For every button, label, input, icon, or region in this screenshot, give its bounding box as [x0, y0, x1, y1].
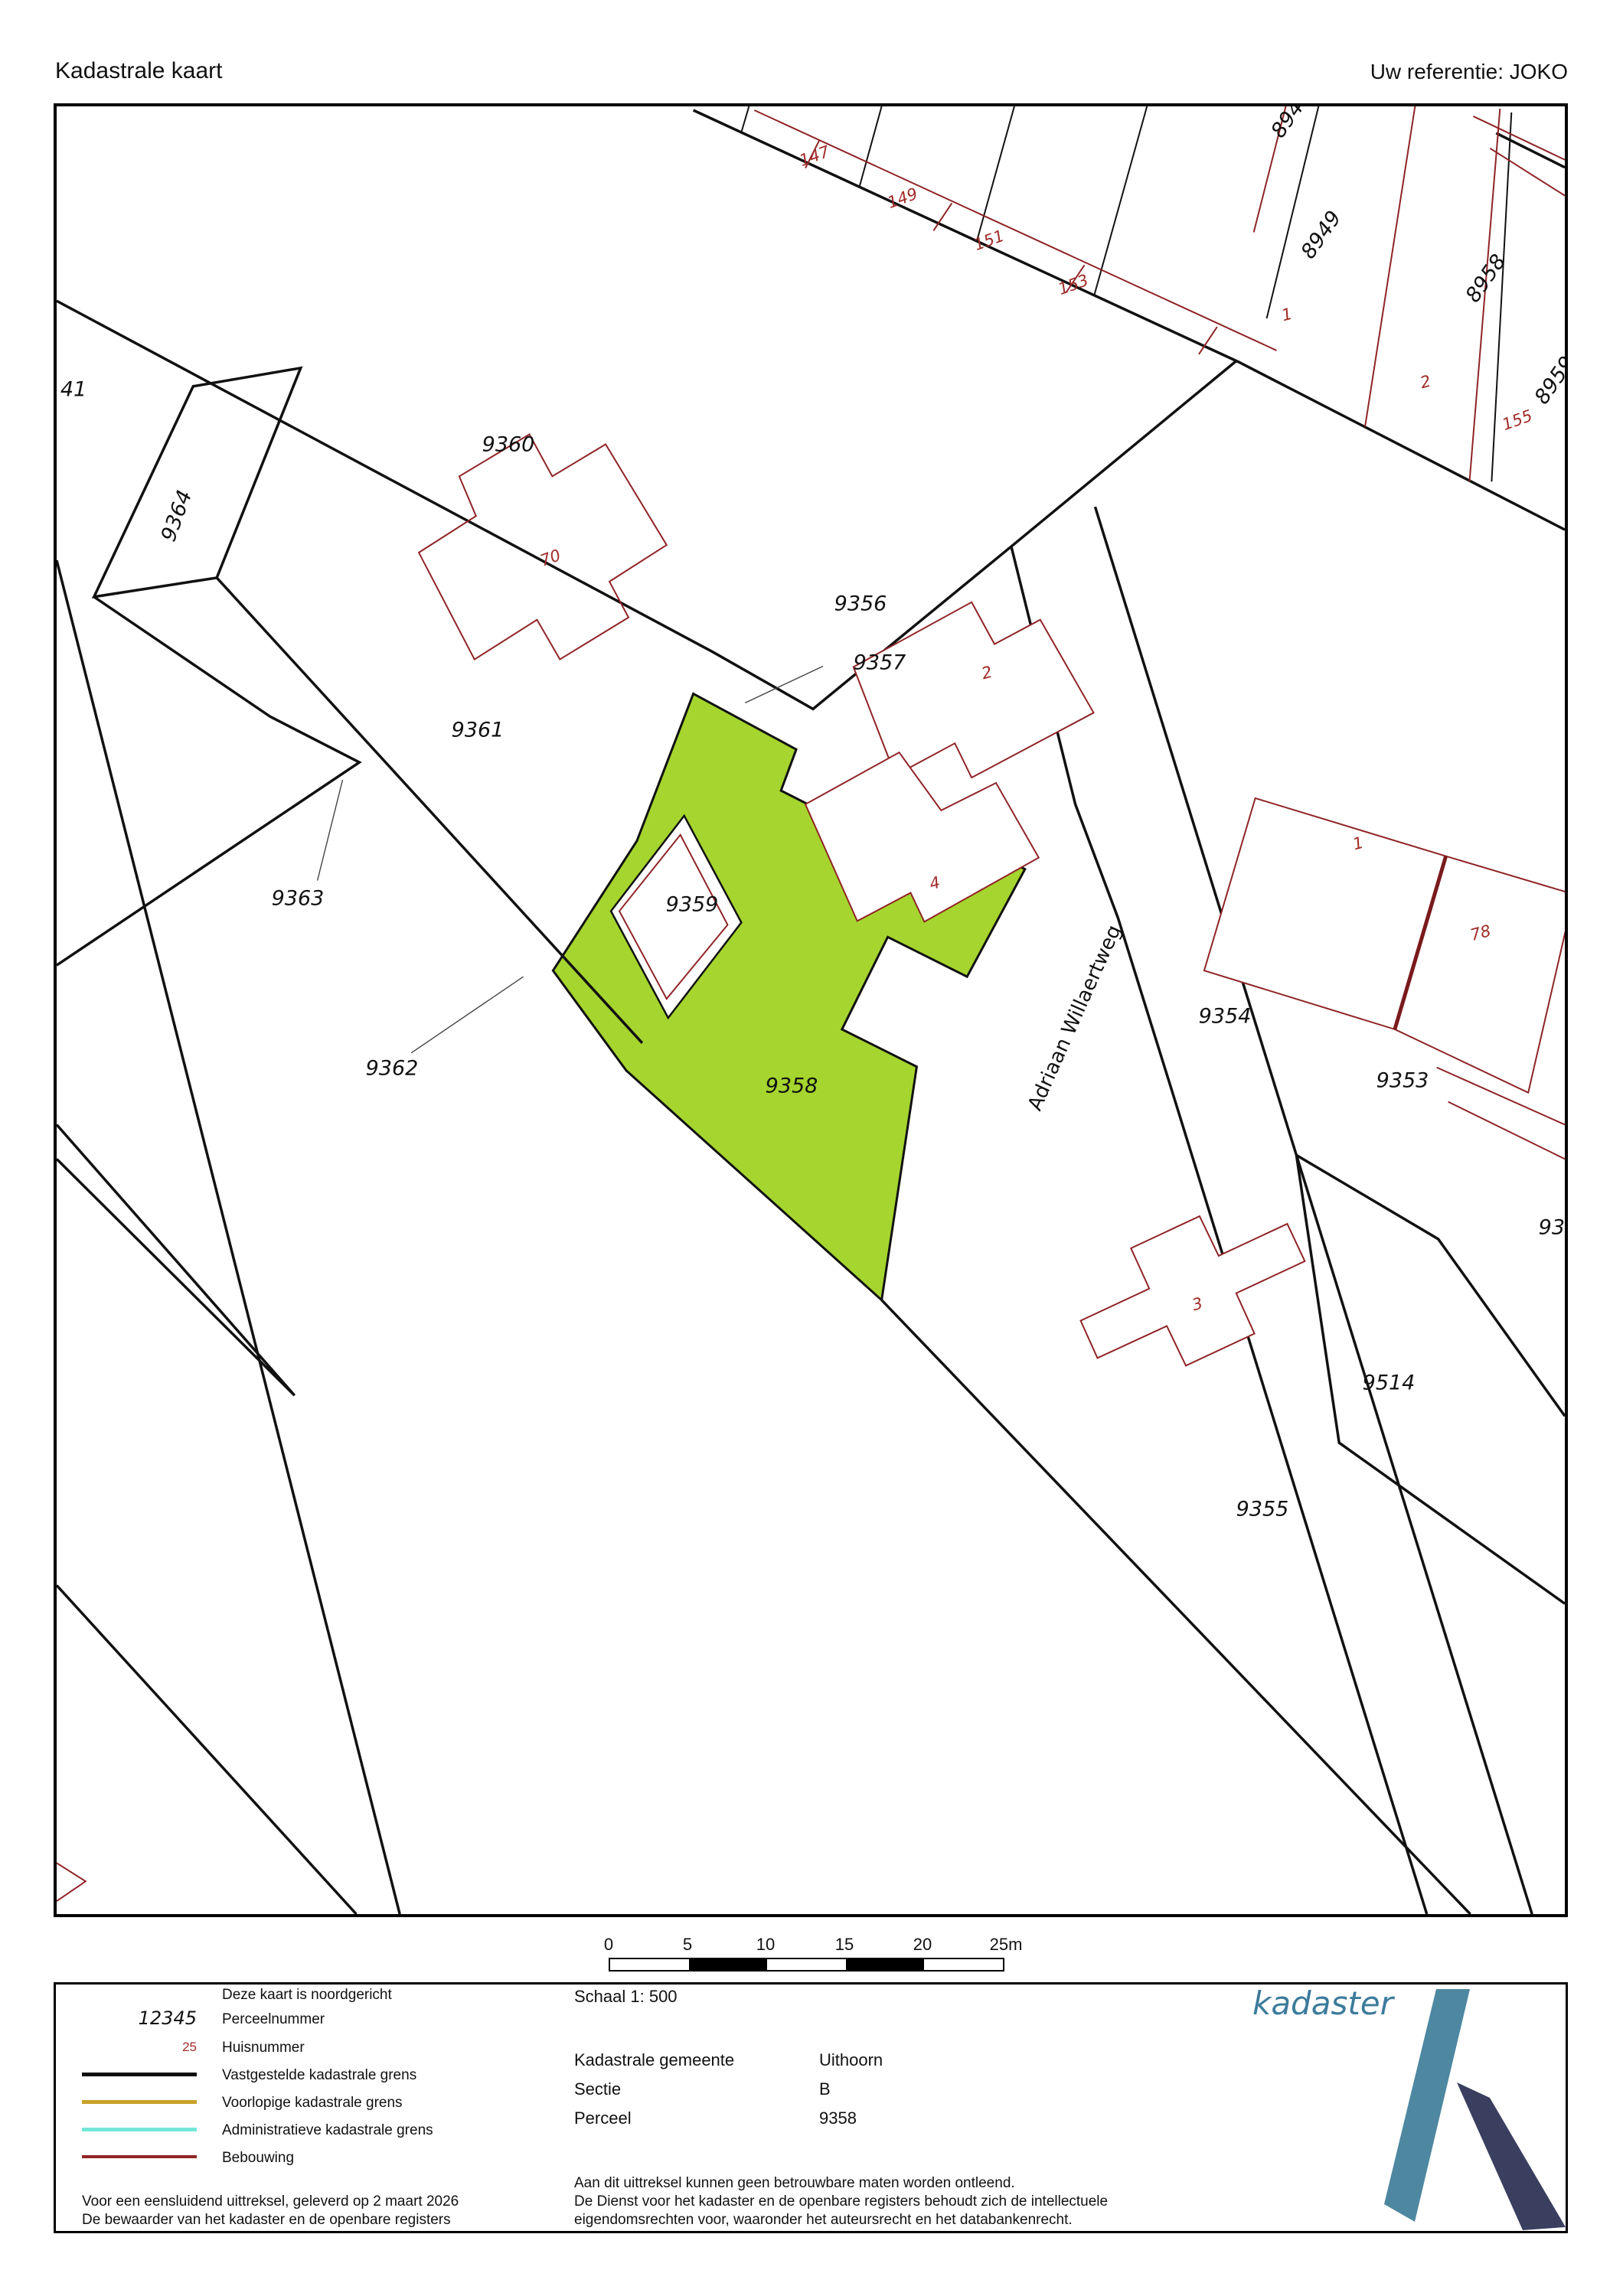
- page-title: Kadastrale kaart: [55, 58, 222, 84]
- parcel-number-label: 9354: [1199, 1005, 1252, 1029]
- parcel-number-label: 9357: [854, 651, 906, 675]
- legend-line-administratief: [82, 2128, 197, 2131]
- scale-tick: 15: [835, 1935, 854, 1955]
- scale-tick: 0: [604, 1935, 613, 1955]
- legend-label: Administratieve kadastrale grens: [222, 2122, 433, 2139]
- legend-line-voorlopig: [82, 2100, 197, 2104]
- legend-symbol-perceelnummer: 12345: [82, 2007, 197, 2029]
- parcel-number-label: 9358: [766, 1075, 818, 1098]
- parcel-number-label: 9514: [1363, 1371, 1416, 1395]
- scale-bar: 0 5 10 15 20 25m: [589, 1935, 1049, 1978]
- parcel-number-label: 9361: [452, 719, 505, 742]
- scale-tick: 10: [756, 1935, 775, 1955]
- disclaimer-line: Aan dit uittreksel kunnen geen betrouwba…: [574, 2175, 1015, 2192]
- scale-bar-segments: [609, 1958, 1004, 1971]
- parcel-number-label: 9360: [482, 433, 535, 457]
- legend-symbol-huisnummer: 25: [82, 2040, 197, 2055]
- parcel-number-label: 41: [60, 378, 87, 402]
- map-geometry: [57, 106, 1565, 1914]
- footer-line: Voor een eensluidend uittreksel, gelever…: [82, 2193, 459, 2210]
- disclaimer-line: eigendomsrechten voor, waaronder het aut…: [574, 2212, 1073, 2229]
- footer-line: De bewaarder van het kadaster en de open…: [82, 2212, 451, 2229]
- gemeente-label: Kadastrale gemeente: [574, 2050, 734, 2070]
- sectie-label: Sectie: [574, 2079, 621, 2099]
- legend-label: Vastgestelde kadastrale grens: [222, 2067, 416, 2084]
- parcel-number-label: 9355: [1236, 1498, 1289, 1521]
- parcel-number-label: 9353: [1376, 1069, 1429, 1093]
- kadaster-logo-icon: [1250, 1989, 1572, 2232]
- building-2: [854, 602, 1094, 778]
- legend-line-bebouwing: [82, 2155, 197, 2158]
- parcel-number-label: 9363: [272, 887, 325, 911]
- legend-label: Perceelnummer: [222, 2011, 325, 2028]
- perceel-value: 9358: [819, 2108, 857, 2128]
- info-panel: Deze kaart is noordgericht 12345 Perceel…: [54, 1982, 1568, 2233]
- parcel-number-label: 9356: [834, 592, 887, 616]
- parcel-9358-highlight: [553, 693, 1024, 1300]
- scale-tick: 25m: [990, 1935, 1023, 1955]
- perceel-label: Perceel: [574, 2108, 632, 2128]
- schaal-label: Schaal 1: 500: [574, 1987, 678, 2007]
- legend-label: Bebouwing: [222, 2150, 294, 2167]
- reference-label: Uw referentie: JOKO: [1370, 60, 1568, 84]
- legend-label: Voorlopige kadastrale grens: [222, 2095, 403, 2112]
- kadastrale-kaart-page: Kadastrale kaart Uw referentie: JOKO: [0, 0, 1623, 2296]
- map-canvas[interactable]: 4193649360936193639362935693579359935893…: [54, 103, 1568, 1917]
- parcel-number-label: 9362: [366, 1057, 419, 1081]
- parcel-number-label: 9352: [1539, 1216, 1568, 1240]
- building-3: [1081, 1216, 1305, 1365]
- scale-tick: 20: [913, 1935, 932, 1955]
- north-note: Deze kaart is noordgericht: [222, 1987, 392, 2004]
- legend-line-vastgesteld: [82, 2073, 197, 2076]
- legend-label: Huisnummer: [222, 2040, 305, 2056]
- disclaimer-line: De Dienst voor het kadaster en de openba…: [574, 2193, 1108, 2210]
- gemeente-value: Uithoorn: [819, 2050, 883, 2070]
- sectie-value: B: [819, 2079, 831, 2099]
- parcel-number-label: 9359: [666, 893, 719, 917]
- scale-tick: 5: [683, 1935, 692, 1955]
